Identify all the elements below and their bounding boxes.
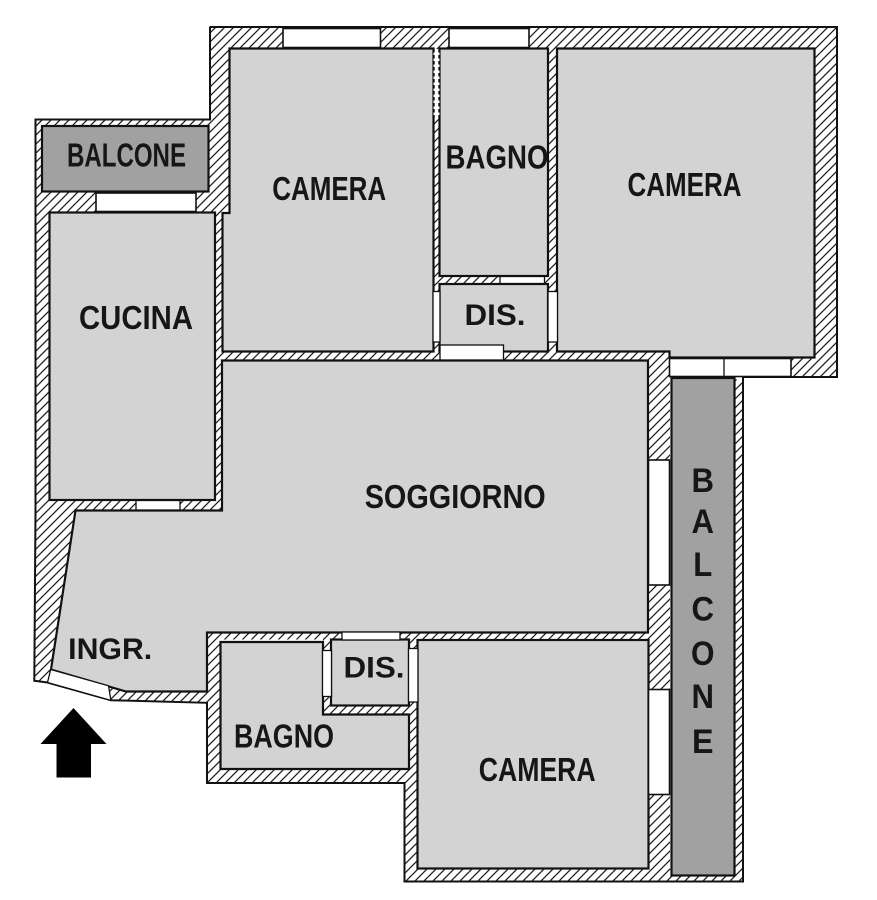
svg-text:C: C bbox=[692, 591, 715, 629]
svg-text:CUCINA: CUCINA bbox=[79, 299, 193, 336]
svg-text:DIS.: DIS. bbox=[344, 652, 405, 685]
svg-text:BALCONE: BALCONE bbox=[67, 137, 186, 174]
svg-text:E: E bbox=[692, 723, 714, 761]
svg-text:BAGNO: BAGNO bbox=[234, 718, 334, 755]
svg-text:CAMERA: CAMERA bbox=[479, 751, 596, 788]
svg-text:INGR.: INGR. bbox=[68, 633, 152, 666]
svg-text:B: B bbox=[692, 462, 715, 500]
svg-text:CAMERA: CAMERA bbox=[628, 166, 742, 203]
svg-text:DIS.: DIS. bbox=[465, 299, 526, 332]
svg-text:A: A bbox=[692, 503, 715, 541]
svg-text:L: L bbox=[693, 546, 712, 584]
svg-text:N: N bbox=[692, 678, 715, 716]
svg-text:CAMERA: CAMERA bbox=[272, 170, 386, 207]
svg-text:BAGNO: BAGNO bbox=[446, 139, 549, 176]
svg-text:SOGGIORNO: SOGGIORNO bbox=[365, 478, 546, 515]
svg-text:O: O bbox=[691, 635, 715, 673]
